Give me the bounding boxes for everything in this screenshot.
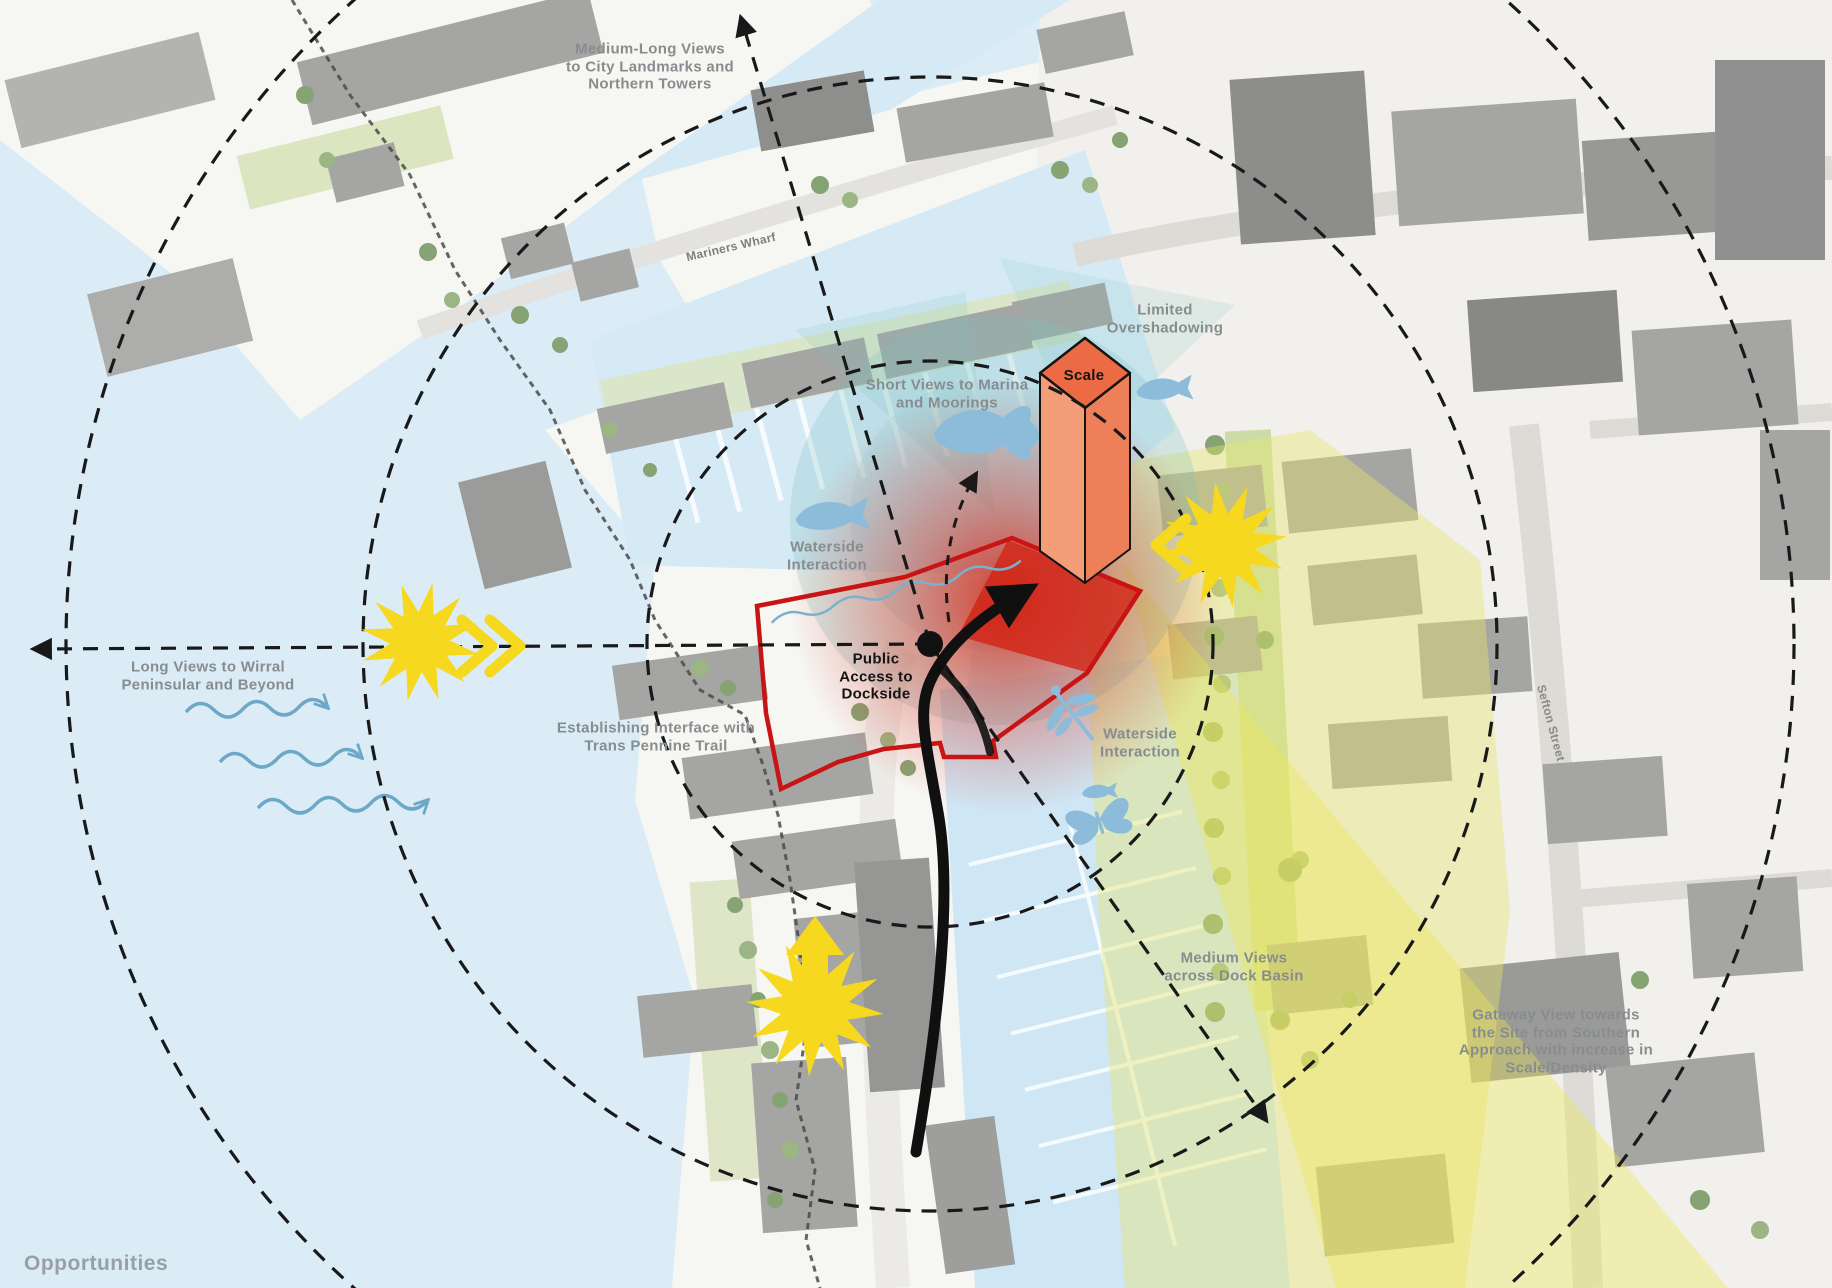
label-medium-long-views: Medium-Long Views to City Landmarks and … [566, 40, 734, 93]
center-point-dot [917, 631, 943, 657]
page-title: Opportunities [24, 1252, 168, 1277]
label-long-views: Long Views to Wirral Peninsular and Beyo… [122, 658, 295, 693]
label-medium-views: Medium Views across Dock Basin [1164, 949, 1303, 984]
sun-icon-west [349, 571, 520, 713]
label-waterside-interaction-east: Waterside Interaction [1100, 725, 1180, 760]
label-limited-overshadowing: Limited Overshadowing [1107, 301, 1223, 336]
label-gateway-view: Gateway View towards the Site from South… [1459, 1007, 1653, 1078]
opportunities-site-diagram: Medium-Long Views to City Landmarks and … [0, 0, 1832, 1288]
label-scale-marker: Scale [1064, 367, 1105, 385]
label-establishing-interface: Establishing Interface with Trans Pennin… [557, 719, 755, 754]
label-public-access: Public Access to Dockside [839, 650, 913, 703]
label-waterside-interaction-west: Waterside Interaction [787, 538, 867, 573]
site-map [0, 0, 1832, 1288]
label-short-views: Short Views to Marina and Moorings [866, 376, 1029, 411]
